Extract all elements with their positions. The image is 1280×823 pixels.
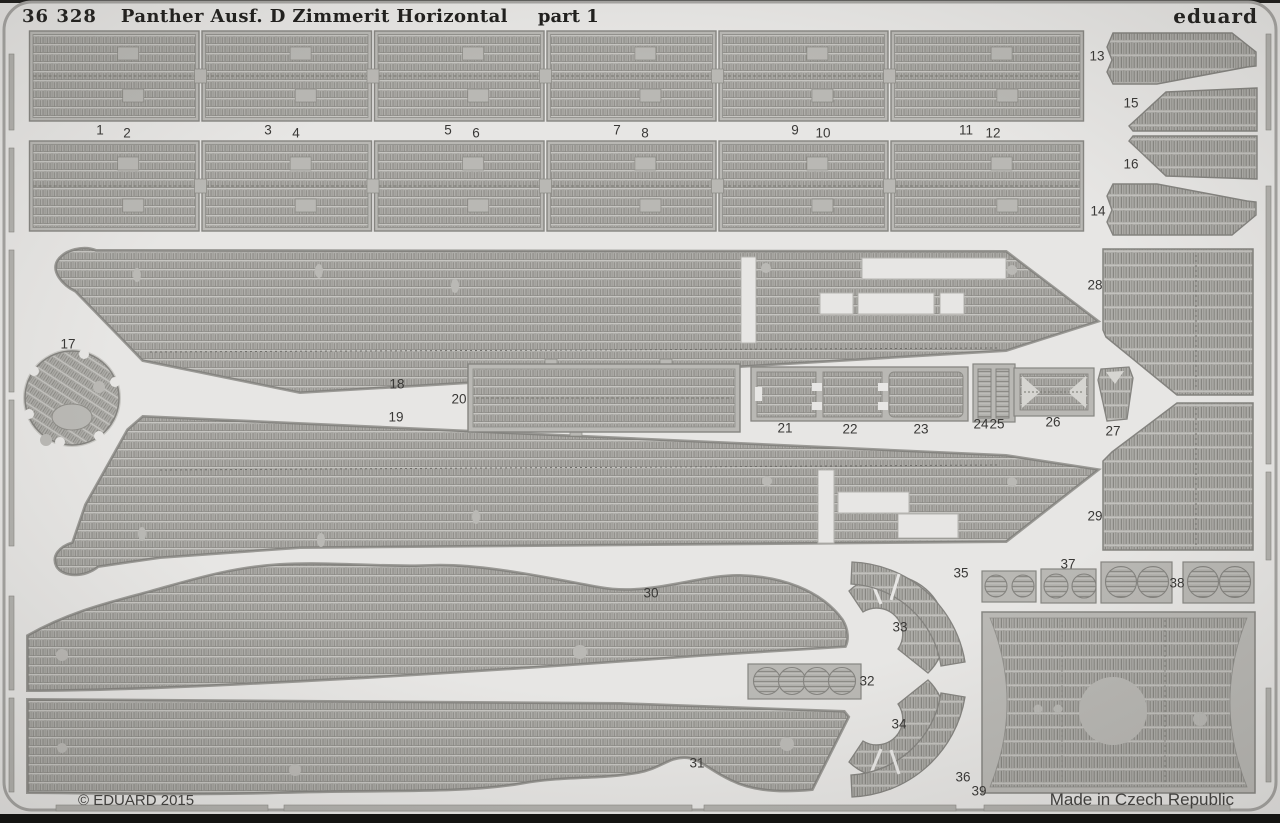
part-14-fender [1107, 184, 1256, 235]
part-32-plate [748, 664, 861, 699]
part-39-rear-plate [982, 612, 1255, 793]
part-30-fender [28, 564, 847, 690]
part-29-panel [1103, 403, 1253, 550]
part-31-fender [28, 700, 848, 793]
parts-37-38-barrel-plates [982, 562, 1254, 603]
copyright-text: © EDUARD 2015 [78, 792, 194, 809]
part-13-fender [1107, 33, 1256, 84]
zimmerit-strips-row-bottom [30, 141, 1084, 231]
parts-24-25-bars [973, 364, 1015, 422]
photo-etch-sheet-photo: 36 328 Panther Ausf. D Zimmerit Horizont… [0, 0, 1280, 823]
part-26-plate [1014, 368, 1094, 416]
part-20-strip [468, 359, 740, 436]
fret-graphic [0, 0, 1280, 823]
photo-bottom-edge [0, 814, 1280, 823]
part-16-fender [1129, 136, 1257, 179]
part-19-hull-side [55, 417, 1097, 574]
part-27-shield [1098, 367, 1133, 421]
parts-21-23-plate [751, 367, 968, 421]
part-17-disc [24, 349, 120, 447]
part-15-fender [1129, 88, 1257, 131]
zimmerit-strips-row-top [30, 31, 1084, 121]
made-in-text: Made in Czech Republic [1050, 790, 1234, 810]
